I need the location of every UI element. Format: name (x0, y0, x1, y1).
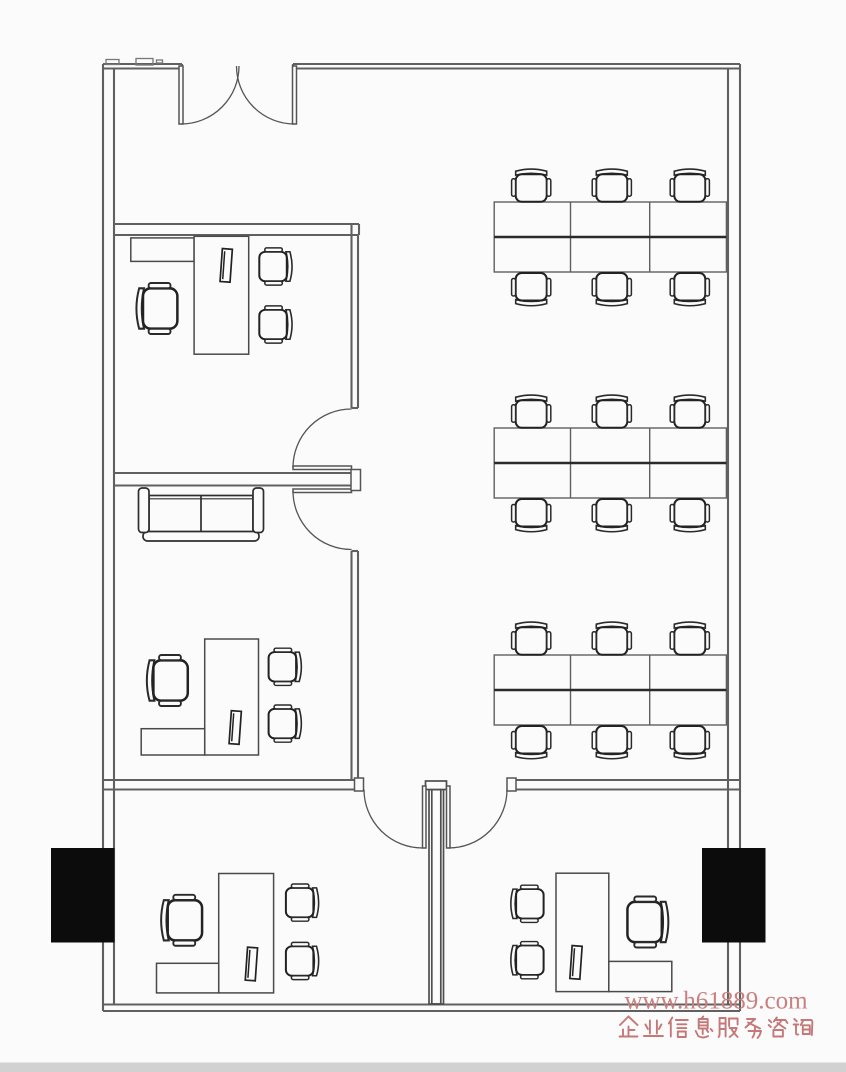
svg-text:www.h61889.com: www.h61889.com (624, 988, 808, 1015)
